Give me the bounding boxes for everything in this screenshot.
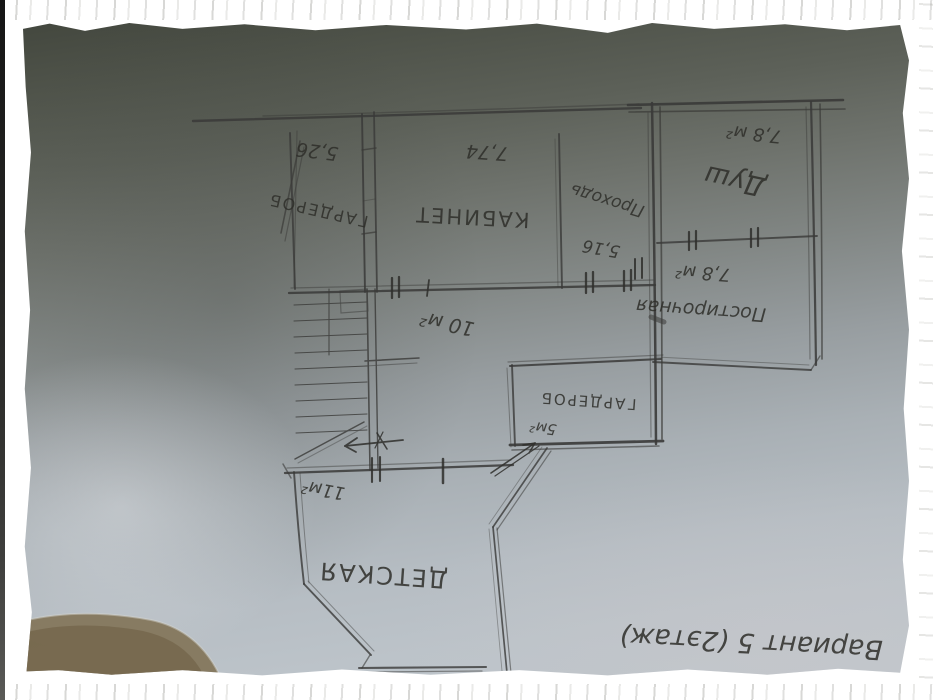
- photo-of-floor-plan: { "plan": { "caption": "Вариант 5 (2этаж…: [0, 0, 933, 700]
- room-area-cabinet: 7,74: [465, 140, 509, 165]
- room-label-wardrobe-top: ГАРДЕРОБ: [266, 190, 370, 232]
- room-area-laundry: 7,8 м²: [675, 260, 731, 285]
- room-area-kids-room: 11м²: [300, 475, 347, 503]
- room-area-hall: 10 м²: [418, 307, 477, 342]
- torn-frame-right: [919, 0, 933, 700]
- room-labels: 5,26 ГАРДЕРОБ 7,74 КАБИНЕТ Проходь 5,16 …: [266, 120, 883, 665]
- room-area-wardrobe-bottom: 5м²: [529, 417, 558, 439]
- frame-left-dark-edge: [0, 0, 5, 700]
- room-label-kids-room: ДЕТСКАЯ: [317, 557, 448, 594]
- staircase-sketch: [294, 289, 419, 470]
- room-label-passage: Проходь: [568, 179, 647, 220]
- torn-frame-bottom: [0, 684, 933, 700]
- room-area-passage: 5,16: [581, 235, 622, 261]
- room-label-wardrobe-bottom: ГАРДЕРОБ: [539, 389, 637, 414]
- table-surface: [23, 614, 221, 678]
- room-label-cabinet: КАБИНЕТ: [414, 202, 530, 232]
- plan-caption: Вариант 5 (2этаж): [619, 620, 884, 665]
- torn-frame-top: [0, 0, 933, 20]
- room-label-shower: Душ: [702, 159, 770, 202]
- room-area-shower: 7,8 м²: [726, 120, 783, 147]
- photo-area: 5,26 ГАРДЕРОБ 7,74 КАБИНЕТ Проходь 5,16 …: [23, 21, 909, 678]
- floor-plan-sketch-svg: 5,26 ГАРДЕРОБ 7,74 КАБИНЕТ Проходь 5,16 …: [23, 21, 909, 678]
- room-area-wardrobe-top: 5,26: [295, 138, 340, 165]
